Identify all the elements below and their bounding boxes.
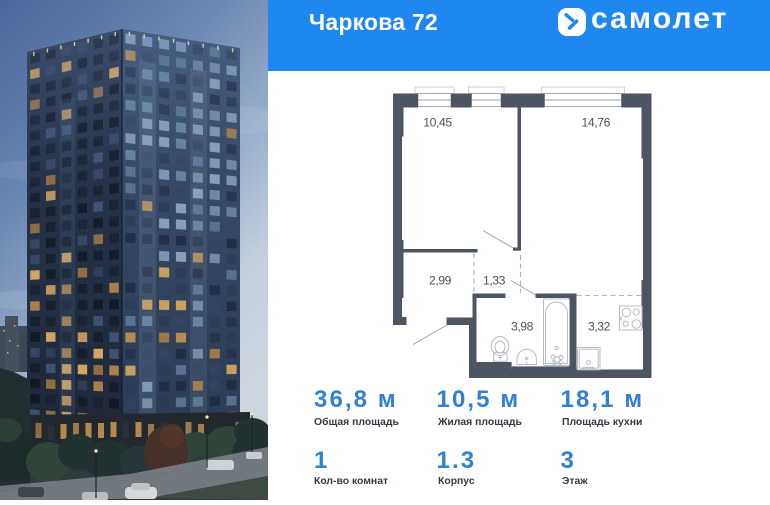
svg-text:3,32: 3,32 (588, 320, 611, 334)
svg-text:14,76: 14,76 (582, 116, 611, 130)
svg-text:3,98: 3,98 (511, 320, 534, 334)
svg-text:1,33: 1,33 (483, 274, 506, 288)
svg-text:10,45: 10,45 (423, 116, 452, 130)
svg-text:2,99: 2,99 (429, 274, 452, 288)
